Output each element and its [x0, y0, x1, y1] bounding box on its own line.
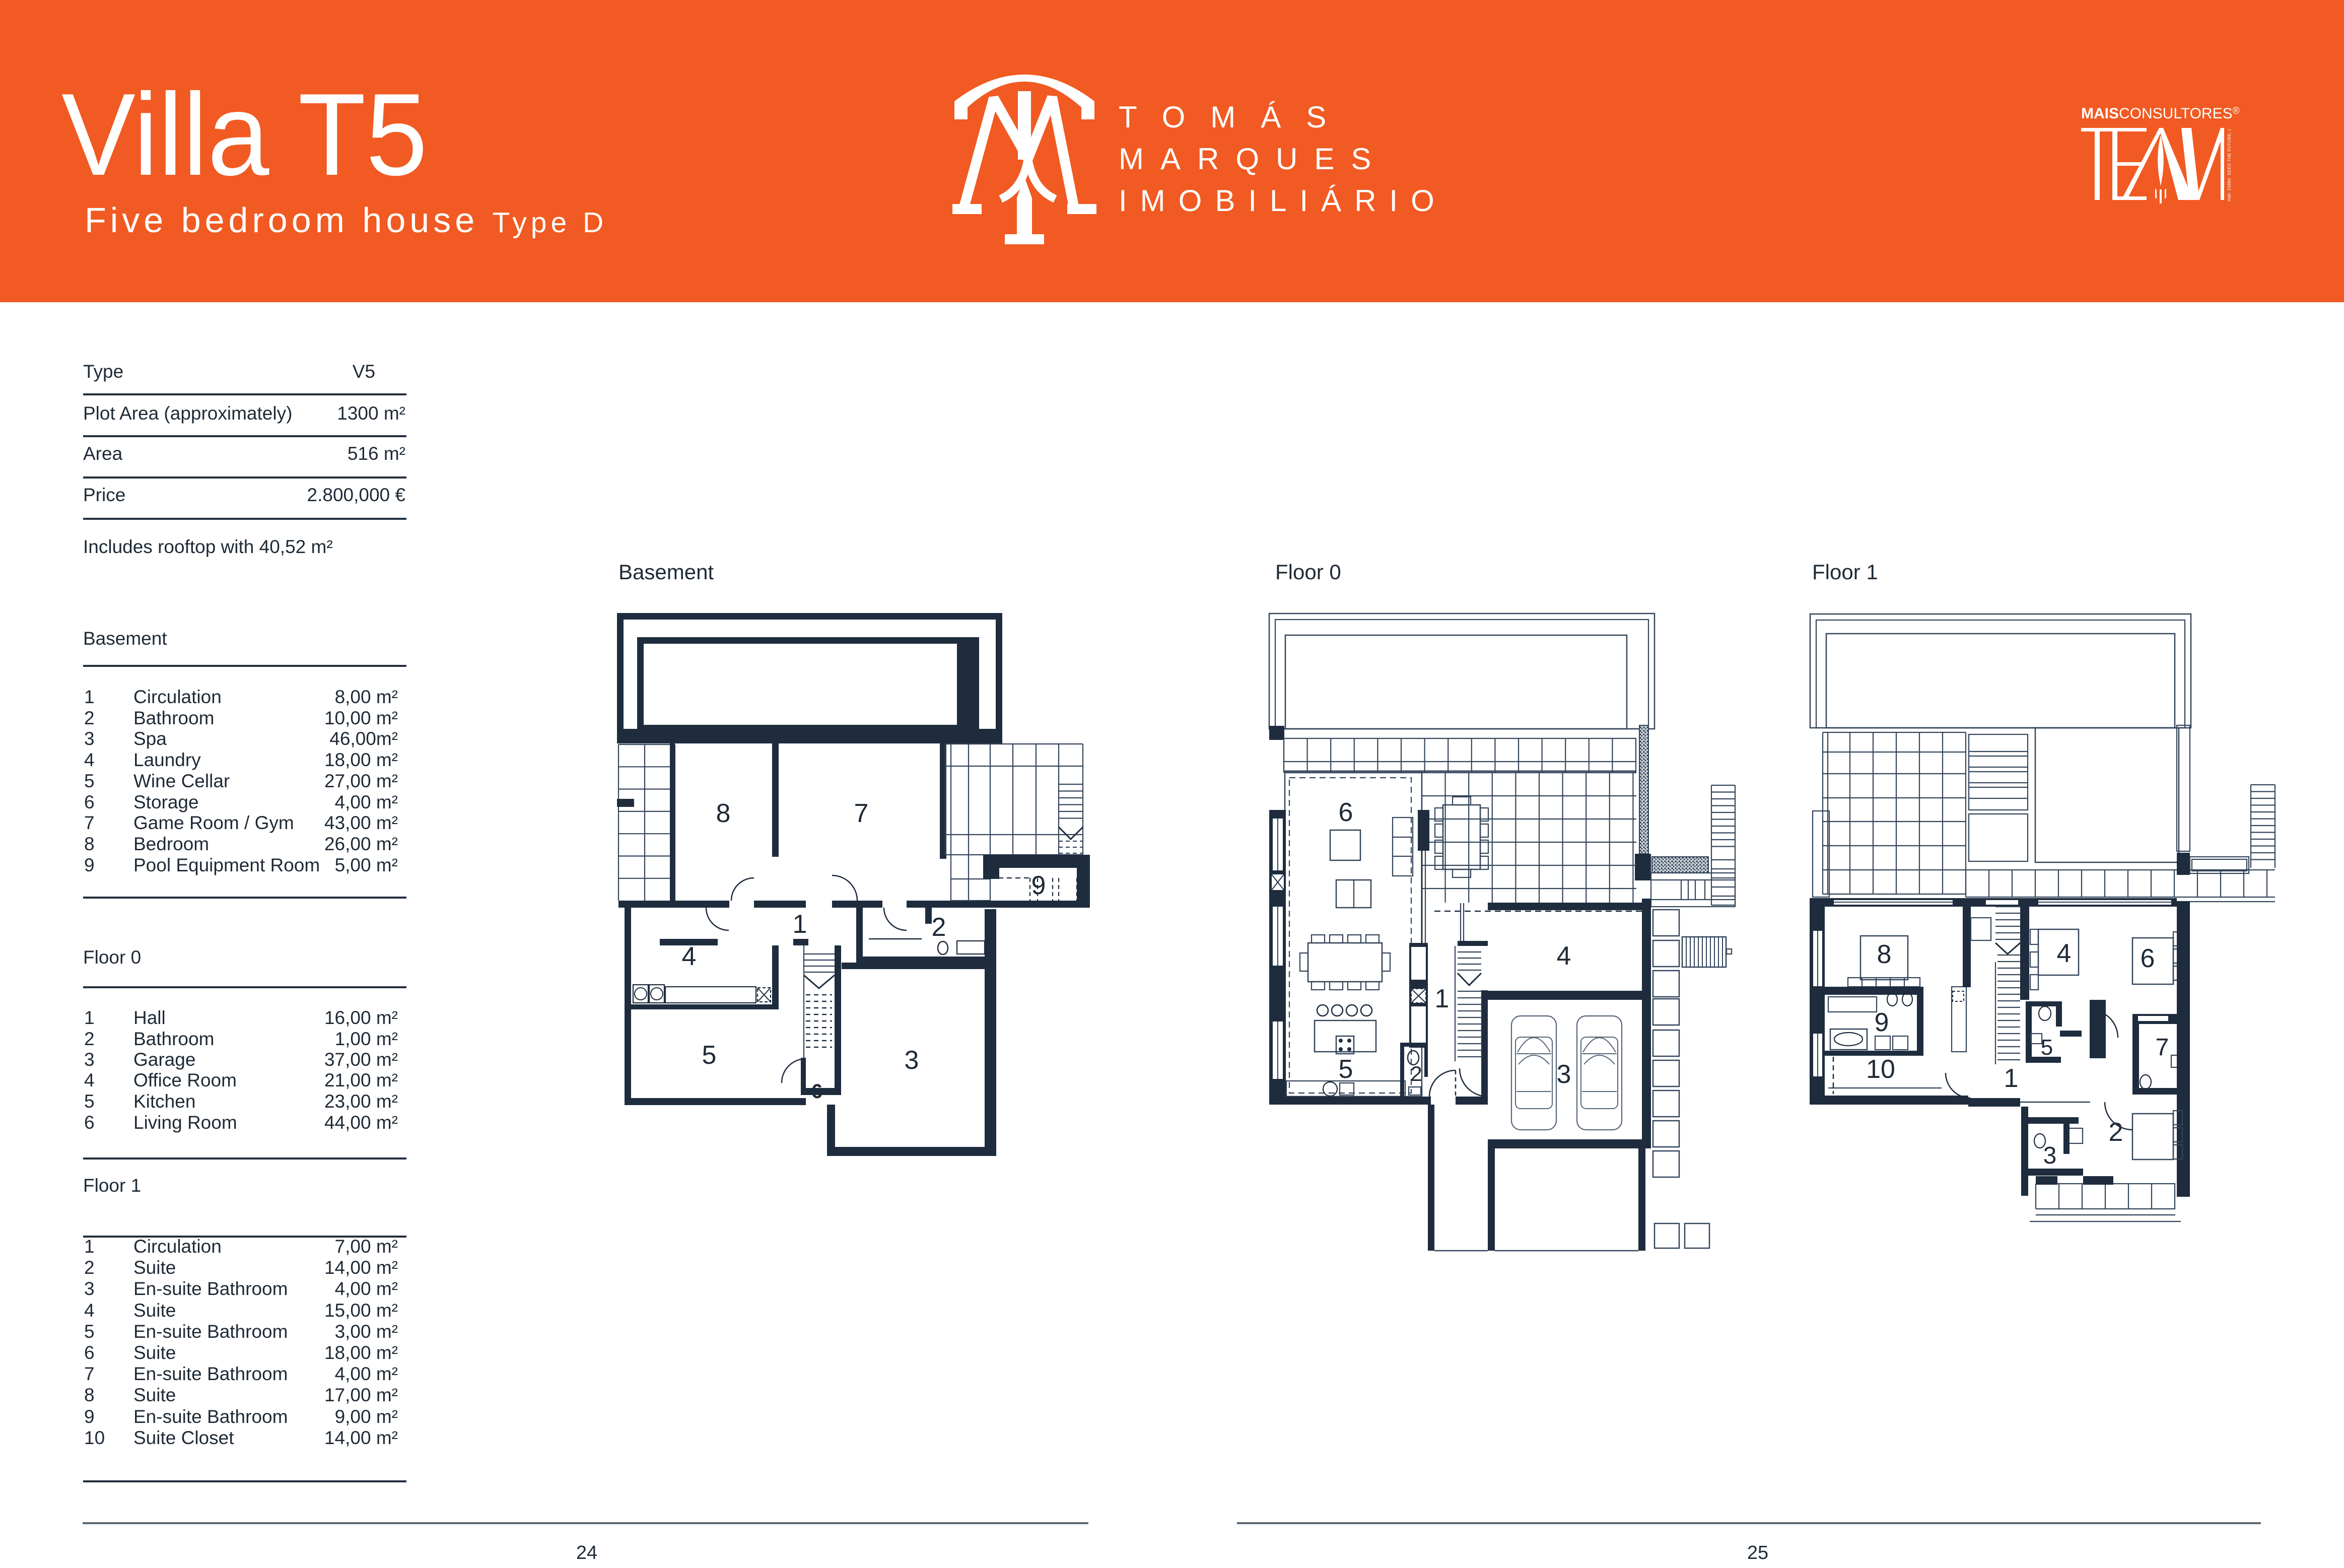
svg-text:8: 8 [716, 799, 731, 828]
svg-text:1: 1 [793, 910, 807, 939]
svg-text:7: 7 [2156, 1034, 2169, 1061]
svg-text:10: 10 [1866, 1055, 1895, 1084]
svg-text:3: 3 [905, 1046, 919, 1075]
svg-text:6: 6 [1339, 798, 1353, 827]
svg-text:7: 7 [854, 799, 869, 828]
svg-text:8: 8 [1877, 940, 1892, 969]
svg-text:5: 5 [2041, 1035, 2053, 1060]
svg-text:2: 2 [932, 913, 946, 942]
svg-text:2: 2 [1410, 1062, 1422, 1085]
svg-text:9: 9 [1031, 871, 1046, 900]
svg-text:1: 1 [1435, 984, 1450, 1013]
svg-text:3: 3 [1557, 1060, 1571, 1089]
svg-text:4: 4 [2057, 939, 2072, 968]
svg-text:5: 5 [1339, 1055, 1353, 1084]
svg-text:9: 9 [1875, 1008, 1889, 1037]
svg-text:4: 4 [682, 942, 697, 971]
svg-text:5: 5 [702, 1041, 717, 1070]
svg-text:6: 6 [2141, 944, 2155, 973]
svg-text:3: 3 [2043, 1142, 2057, 1169]
svg-text:2: 2 [2109, 1118, 2123, 1147]
svg-text:4: 4 [1557, 941, 1571, 971]
svg-text:1: 1 [2004, 1064, 2019, 1093]
